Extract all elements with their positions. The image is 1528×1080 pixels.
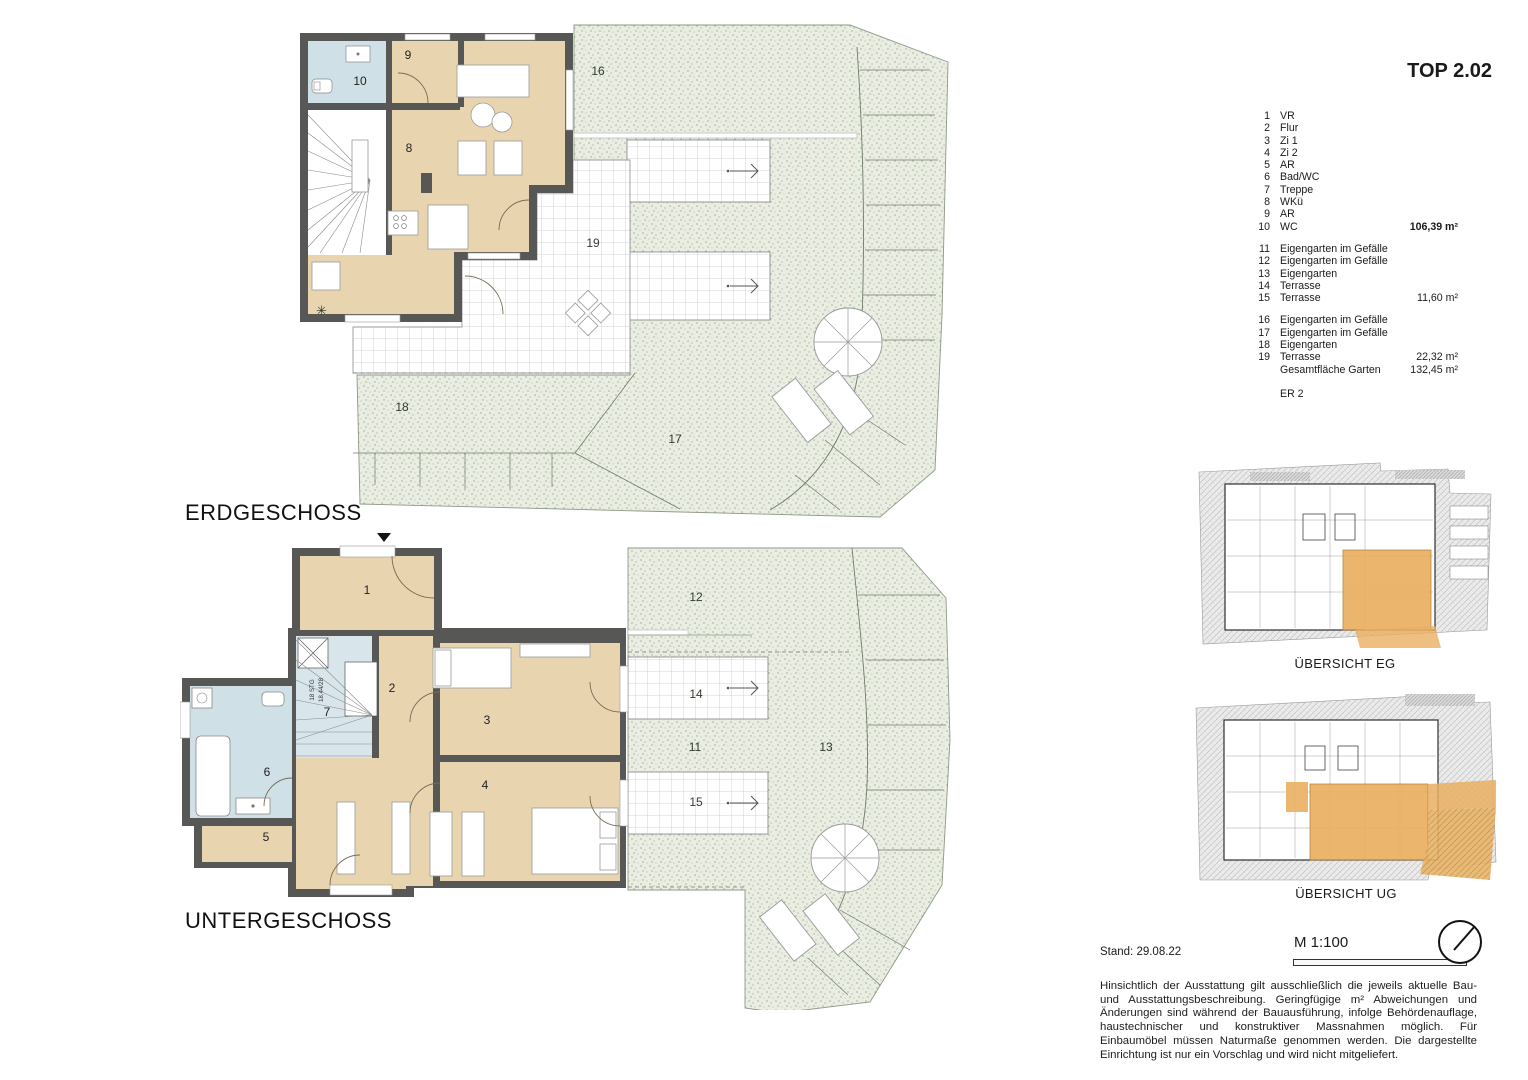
legend-item-label: Gesamtfläche Garten [1280, 364, 1381, 376]
er-label: ER 2 [1280, 388, 1304, 400]
ug-terrace-label-14: 14 [689, 687, 703, 701]
legend-group: 11Eigengarten im Gefälle12Eigengarten im… [1254, 243, 1458, 304]
overview-eg [1195, 458, 1495, 650]
legend-item: 10WC106,39 m² [1254, 221, 1458, 233]
ug-stair-dim-note: 18,44/28 [318, 677, 325, 702]
legend-item: 12Eigengarten im Gefälle [1254, 255, 1458, 267]
plan-untergeschoss: 18 STG 18,44/28 [180, 540, 980, 1010]
legend-item-label: Eigengarten [1280, 268, 1337, 280]
legend-item-label: VR [1280, 110, 1295, 122]
legend-item-label: Eigengarten im Gefälle [1280, 243, 1388, 255]
legend-item-label: Treppe [1280, 184, 1313, 196]
legend-item: 18Eigengarten [1254, 339, 1458, 351]
eg-outdoor-tap-icon: ✳ [316, 303, 327, 318]
legend-item-area: 132,45 m² [1410, 364, 1458, 376]
floor-label-erdgeschoss: ERDGESCHOSS [185, 500, 362, 526]
legend-item-number: 5 [1254, 159, 1270, 171]
legend-item-label: Eigengarten im Gefälle [1280, 255, 1388, 267]
legend-item-label: Terrasse [1280, 351, 1321, 363]
legend-item: 3Zi 1 [1254, 135, 1458, 147]
legend-item-number: 17 [1254, 327, 1270, 339]
legend-item: Gesamtfläche Garten132,45 m² [1254, 364, 1458, 376]
overview-ug-label: ÜBERSICHT UG [1190, 886, 1502, 901]
legend-item: 11Eigengarten im Gefälle [1254, 243, 1458, 255]
legend-group: 1VR2Flur3Zi 14Zi 25AR6Bad/WC7Treppe8WKü9… [1254, 110, 1458, 233]
legend-item: 9AR [1254, 208, 1458, 220]
legend-item-label: Flur [1280, 122, 1298, 134]
ug-room-label-2: 2 [389, 681, 396, 695]
legend-item: 5AR [1254, 159, 1458, 171]
legend-group: 16Eigengarten im Gefälle17Eigengarten im… [1254, 314, 1458, 375]
legend-item: 8WKü [1254, 196, 1458, 208]
ug-terrace-label-15: 15 [689, 795, 703, 809]
legend-item-number: 2 [1254, 122, 1270, 134]
overview-ug [1190, 692, 1502, 882]
legend-item: 17Eigengarten im Gefälle [1254, 327, 1458, 339]
legend-item-number: 12 [1254, 255, 1270, 267]
legend-item-number: 6 [1254, 171, 1270, 183]
legend-item: 4Zi 2 [1254, 147, 1458, 159]
legend-item-number: 4 [1254, 147, 1270, 159]
floor-label-untergeschoss: UNTERGESCHOSS [185, 908, 392, 934]
legend-item-number: 11 [1254, 243, 1270, 255]
legend-item-number: 7 [1254, 184, 1270, 196]
disclaimer-text: Hinsichtlich der Ausstattung gilt aussch… [1100, 980, 1477, 1062]
legend-item-number: 14 [1254, 280, 1270, 292]
eg-room-label-8: 8 [406, 141, 413, 155]
eg-walkway [574, 133, 857, 138]
overview-ug-unit-highlight [1310, 784, 1428, 860]
legend-item-number: 9 [1254, 208, 1270, 220]
ug-umbrella [811, 824, 879, 892]
legend-item-label: WKü [1280, 196, 1303, 208]
legend-item-area: 106,39 m² [1410, 221, 1458, 233]
eg-room-label-9: 9 [405, 48, 412, 62]
stand-date: Stand: 29.08.22 [1100, 946, 1181, 958]
ug-room-label-4: 4 [482, 778, 489, 792]
legend-item-label: Eigengarten im Gefälle [1280, 314, 1388, 326]
legend-item-label: Eigengarten im Gefälle [1280, 327, 1388, 339]
eg-terrace-label-19: 19 [586, 236, 600, 250]
eg-garden-label-18: 18 [395, 400, 409, 414]
legend-item: 15Terrasse11,60 m² [1254, 292, 1458, 304]
ug-garden-label-13: 13 [819, 740, 833, 754]
ug-garden-label-12: 12 [689, 590, 703, 604]
legend-item-area: 11,60 m² [1417, 292, 1458, 304]
ug-room-label-7: 7 [324, 705, 331, 719]
scale-label: M 1:100 [1294, 934, 1348, 951]
legend-item-number: 13 [1254, 268, 1270, 280]
legend-item: 6Bad/WC [1254, 171, 1458, 183]
legend: 1VR2Flur3Zi 14Zi 25AR6Bad/WC7Treppe8WKü9… [1254, 110, 1458, 386]
north-arrow-icon [1434, 916, 1486, 968]
legend-item: 1VR [1254, 110, 1458, 122]
plan-erdgeschoss: ✳ 8 9 10 16 19 18 17 [290, 15, 990, 520]
legend-item-number: 8 [1254, 196, 1270, 208]
ug-room-label-5: 5 [263, 830, 270, 844]
eg-stairs [308, 110, 386, 255]
eg-garden-label-17: 17 [668, 432, 682, 446]
overview-eg-label: ÜBERSICHT EG [1195, 656, 1495, 671]
legend-item-label: Bad/WC [1280, 171, 1319, 183]
overview-eg-unit-highlight [1343, 550, 1431, 630]
eg-umbrella [814, 308, 882, 376]
legend-item-label: Terrasse [1280, 292, 1321, 304]
ug-stair-steps-note: 18 STG [309, 679, 316, 701]
legend-item-area: 22,32 m² [1416, 351, 1458, 363]
legend-item-number: 18 [1254, 339, 1270, 351]
ug-room-ar [202, 826, 292, 862]
overview-ug-slope-highlight [1420, 808, 1496, 880]
ug-garden-label-11: 11 [689, 740, 702, 754]
ug-room-label-1: 1 [364, 583, 371, 597]
ug-room-label-6: 6 [264, 765, 271, 779]
eg-room-label-10: 10 [353, 74, 367, 88]
eg-garden-label-16: 16 [591, 64, 605, 78]
legend-item: 14Terrasse [1254, 280, 1458, 292]
legend-item-number: 16 [1254, 314, 1270, 326]
legend-item-label: Terrasse [1280, 280, 1321, 292]
legend-item: 13Eigengarten [1254, 268, 1458, 280]
ug-room-label-3: 3 [484, 713, 491, 727]
legend-item: 19Terrasse22,32 m² [1254, 351, 1458, 363]
legend-item-label: WC [1280, 221, 1298, 233]
sheet-title: TOP 2.02 [1290, 60, 1492, 83]
legend-item-number: 19 [1254, 351, 1270, 363]
legend-item-label: Zi 1 [1280, 135, 1298, 147]
legend-item-number: 10 [1254, 221, 1270, 233]
legend-item: 7Treppe [1254, 184, 1458, 196]
legend-item-label: Zi 2 [1280, 147, 1298, 159]
floor-plan-sheet: ✳ 8 9 10 16 19 18 17 ERDGESCHOSS [0, 0, 1528, 1080]
legend-item-label: Eigengarten [1280, 339, 1337, 351]
legend-item-label: AR [1280, 208, 1295, 220]
legend-item: 16Eigengarten im Gefälle [1254, 314, 1458, 326]
legend-item-number: 1 [1254, 110, 1270, 122]
legend-item: 2Flur [1254, 122, 1458, 134]
legend-item-number: 15 [1254, 292, 1270, 304]
legend-item-number: 3 [1254, 135, 1270, 147]
legend-item-label: AR [1280, 159, 1295, 171]
